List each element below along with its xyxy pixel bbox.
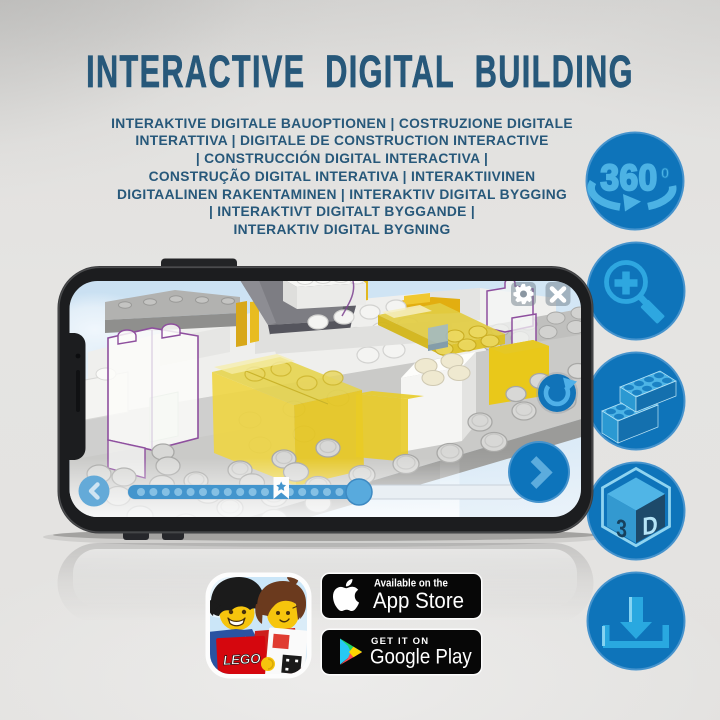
svg-text:LEGO: LEGO	[223, 651, 262, 668]
svg-text:360: 360	[600, 159, 657, 198]
svg-text:App Store: App Store	[373, 588, 464, 613]
svg-text:D: D	[642, 510, 657, 540]
svg-text:0: 0	[661, 165, 669, 182]
svg-text:3: 3	[616, 514, 627, 543]
svg-text:Google Play: Google Play	[370, 646, 472, 669]
